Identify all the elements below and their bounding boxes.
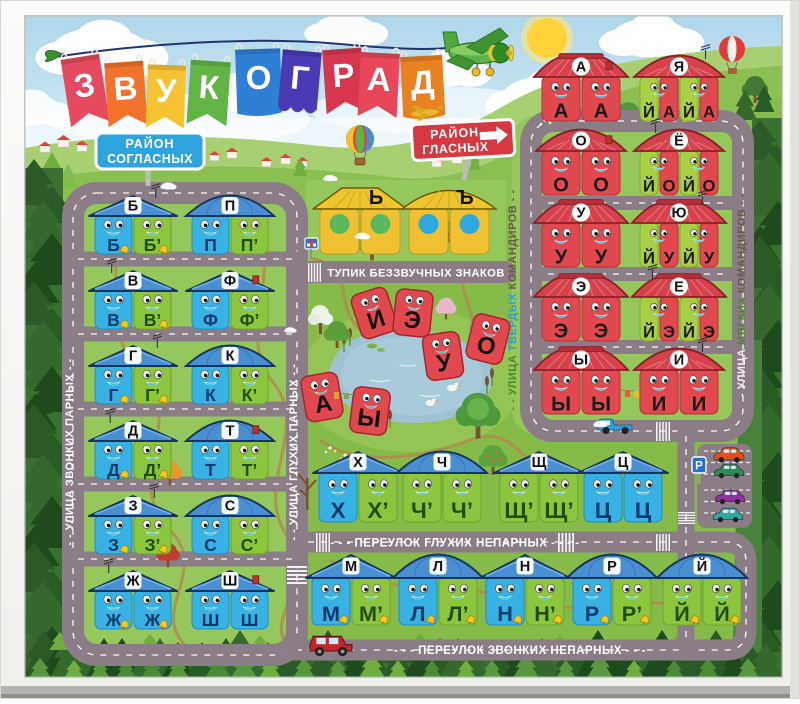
svg-text:К’: К’ <box>242 385 258 405</box>
svg-text:Я: Я <box>674 60 684 76</box>
svg-text:Й: Й <box>683 248 695 267</box>
svg-text:Ж: Ж <box>144 610 161 630</box>
svg-text:И: И <box>652 393 667 415</box>
svg-text:А: А <box>366 60 392 98</box>
svg-text:Э: Э <box>554 320 568 342</box>
svg-text:Р: Р <box>607 559 617 575</box>
svg-text:Л: Л <box>433 559 443 575</box>
svg-text:У: У <box>704 248 715 267</box>
svg-text:В’: В’ <box>144 310 162 330</box>
svg-text:Х: Х <box>353 455 363 471</box>
svg-text:Щ’: Щ’ <box>504 498 533 523</box>
svg-text:Й: Й <box>697 557 707 575</box>
svg-text:Э: Э <box>402 306 422 335</box>
svg-text:Й: Й <box>683 176 695 195</box>
svg-text:З: З <box>128 499 137 515</box>
svg-text:А: А <box>663 102 675 121</box>
svg-text:Ч: Ч <box>437 455 447 471</box>
svg-text:Т: Т <box>226 424 235 440</box>
svg-text:Ф: Ф <box>224 274 236 290</box>
svg-text:Г: Г <box>109 385 119 405</box>
svg-text:У: У <box>595 246 608 268</box>
svg-text:П: П <box>204 235 217 255</box>
svg-text:- - - ПЕРЕУЛОК ЗВОНКИХ НЕПА: - - - ПЕРЕУЛОК ЗВОНКИХ НЕПАРНЫХ - - - <box>394 645 646 657</box>
svg-text:Л: Л <box>410 601 425 626</box>
svg-text:Ы: Ы <box>574 353 588 369</box>
svg-text:Д: Д <box>128 424 139 440</box>
svg-text:Ч’: Ч’ <box>411 498 433 523</box>
svg-text:РАЙОН: РАЙОН <box>125 136 174 151</box>
svg-text:Ш: Ш <box>241 610 259 630</box>
svg-text:П: П <box>225 199 235 215</box>
svg-text:З: З <box>108 535 119 555</box>
svg-text:Й: Й <box>683 102 695 121</box>
svg-text:Ъ: Ъ <box>456 187 473 209</box>
svg-text:Н’: Н’ <box>534 601 556 626</box>
svg-text:- - УЛИЦА ТВЁРДЫХ КОМАНДИРОВ -: - - УЛИЦА ТВЁРДЫХ КОМАНДИРОВ - - <box>506 189 519 410</box>
svg-text:Ы: Ы <box>356 404 383 434</box>
svg-text:Б: Б <box>128 199 138 215</box>
svg-text:Э: Э <box>594 320 608 342</box>
svg-text:З’: З’ <box>145 535 161 555</box>
svg-text:К: К <box>198 68 222 106</box>
svg-text:Щ’: Щ’ <box>544 498 573 523</box>
svg-text:Г: Г <box>289 58 311 97</box>
svg-text:Й: Й <box>643 322 655 341</box>
svg-text:Ш: Ш <box>202 610 220 630</box>
svg-text:Ы: Ы <box>551 393 571 415</box>
svg-text:И: И <box>674 353 684 369</box>
svg-text:У: У <box>555 246 568 268</box>
svg-text:А: А <box>703 102 715 121</box>
svg-text:Ю: Ю <box>672 206 687 222</box>
svg-text:Б: Б <box>107 235 120 255</box>
svg-text:О: О <box>663 176 676 195</box>
svg-text:Л’: Л’ <box>447 601 468 626</box>
svg-text:В: В <box>112 69 138 108</box>
svg-text:РАЙОН: РАЙОН <box>430 124 480 142</box>
svg-text:Ц: Ц <box>595 498 612 523</box>
svg-text:Й: Й <box>643 248 655 267</box>
svg-text:Т’: Т’ <box>242 460 258 480</box>
svg-text:Ш: Ш <box>223 574 238 590</box>
svg-text:Ц: Ц <box>635 498 652 523</box>
svg-text:- - УЛИЦА ЗВОНКИХ ПАРНЫХ -: - - УЛИЦА ЗВОНКИХ ПАРНЫХ - - <box>64 358 76 545</box>
svg-text:О: О <box>245 59 272 97</box>
svg-text:Н: Н <box>497 601 513 626</box>
svg-text:Э: Э <box>576 280 586 296</box>
svg-text:Д: Д <box>107 460 120 480</box>
svg-text:М’: М’ <box>359 601 383 626</box>
svg-text:ТУПИК БЕЗЗВУЧНЫХ ЗНАКОВ: ТУПИК БЕЗЗВУЧНЫХ ЗНАКОВ <box>327 268 504 280</box>
svg-text:Ф’: Ф’ <box>240 310 260 330</box>
svg-text:Й: Й <box>643 102 655 121</box>
svg-text:К: К <box>205 385 216 405</box>
svg-text:Е: Е <box>674 280 684 296</box>
svg-text:Б’: Б’ <box>144 235 161 255</box>
svg-text:А: А <box>594 100 609 122</box>
svg-text:- - - ПЕРЕУЛОК ГЛУХИХ НЕПАР: - - - ПЕРЕУЛОК ГЛУХИХ НЕПАРНЫХ - - - - <box>330 538 579 550</box>
svg-text:Ц: Ц <box>618 455 629 471</box>
svg-text:Р’: Р’ <box>622 601 642 626</box>
svg-text:Й: Й <box>643 176 655 195</box>
svg-text:Щ: Щ <box>532 455 547 471</box>
svg-text:Р: Р <box>585 601 599 626</box>
svg-text:Ь: Ь <box>369 187 383 209</box>
svg-text:У: У <box>576 206 586 222</box>
svg-text:Х’: Х’ <box>367 498 388 523</box>
svg-text:В: В <box>107 310 120 330</box>
svg-text:В: В <box>128 274 138 290</box>
svg-text:Р: Р <box>695 461 703 473</box>
svg-text:Ё: Ё <box>674 133 684 150</box>
svg-text:Ч’: Ч’ <box>451 498 473 523</box>
svg-text:Й: Й <box>683 322 695 341</box>
svg-text:О: О <box>593 174 609 196</box>
svg-text:С: С <box>225 499 236 515</box>
svg-text:М: М <box>345 559 357 575</box>
svg-text:Ы: Ы <box>591 393 611 415</box>
svg-text:Н: Н <box>520 559 530 575</box>
svg-text:О: О <box>553 174 569 196</box>
svg-text:О: О <box>703 176 716 195</box>
svg-text:С: С <box>204 535 217 555</box>
svg-text:А: А <box>576 60 587 76</box>
svg-text:Й: Й <box>674 601 690 626</box>
svg-text:К: К <box>226 349 235 365</box>
svg-text:Ф: Ф <box>203 310 218 330</box>
svg-text:У: У <box>155 72 177 110</box>
svg-text:Г: Г <box>129 349 137 365</box>
svg-text:М: М <box>322 601 340 626</box>
svg-text:- - УЛИЦА ГЛУХИХ ПАРНЫХ -: - - УЛИЦА ГЛУХИХ ПАРНЫХ - - <box>288 364 300 541</box>
svg-text:Ж: Ж <box>105 610 122 630</box>
svg-text:У: У <box>664 248 675 267</box>
svg-text:СОГЛАСНЫХ: СОГЛАСНЫХ <box>107 152 193 166</box>
svg-text:А: А <box>554 100 569 122</box>
svg-text:Э: Э <box>663 322 675 341</box>
svg-text:С’: С’ <box>241 535 259 555</box>
svg-text:Ж: Ж <box>125 574 140 590</box>
svg-text:Й: Й <box>714 601 730 626</box>
svg-text:Х: Х <box>330 498 345 523</box>
svg-text:Д’: Д’ <box>144 460 161 480</box>
svg-text:Р: Р <box>331 56 356 94</box>
svg-text:Т: Т <box>205 460 216 480</box>
svg-text:- УЛИЦА МЯГКИХ КОМАНДИРОВ - -: - УЛИЦА МЯГКИХ КОМАНДИРОВ - - <box>736 193 748 397</box>
svg-text:О: О <box>575 134 586 150</box>
svg-text:И: И <box>692 393 707 415</box>
svg-text:Г’: Г’ <box>145 385 160 405</box>
svg-text:П’: П’ <box>241 235 258 255</box>
svg-text:Д: Д <box>410 63 435 101</box>
